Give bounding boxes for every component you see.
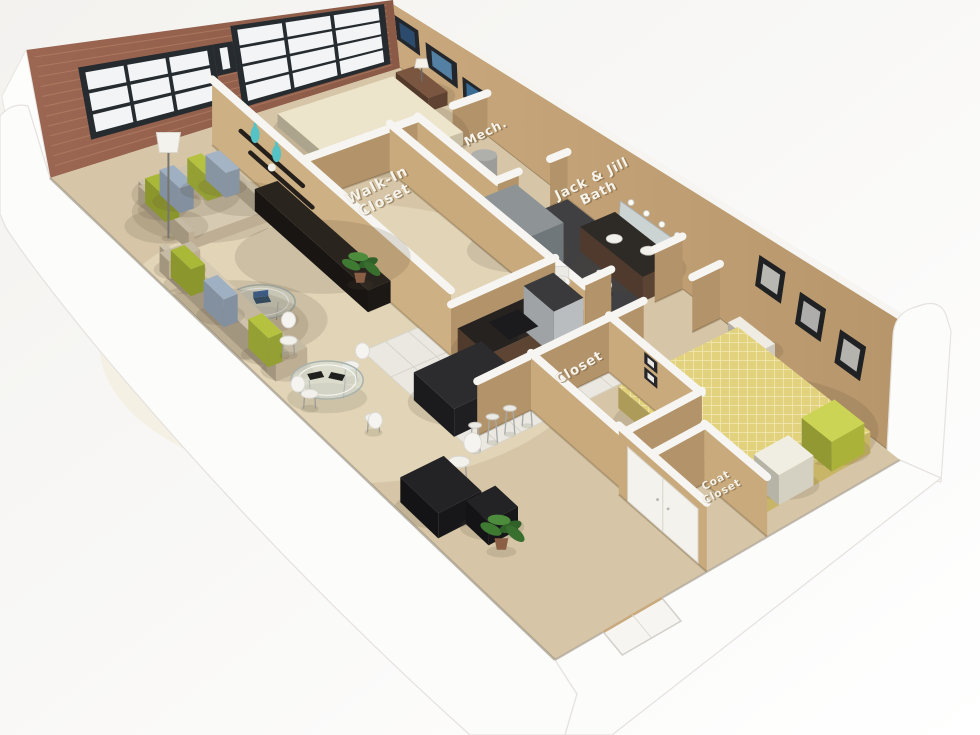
exterior-wall-right-parapet bbox=[886, 303, 951, 482]
teal-vase bbox=[251, 126, 260, 143]
floorplan-3d-render: Walk-InWalk-InClosetClosetMech.Mech.Jack… bbox=[0, 0, 980, 735]
vanity-light-bulb bbox=[659, 221, 665, 227]
teal-vase bbox=[272, 145, 281, 162]
floorplan-svg: Walk-InWalk-InClosetClosetMech.Mech.Jack… bbox=[0, 0, 980, 735]
vanity-light-bulb bbox=[628, 200, 634, 206]
decor-sphere bbox=[268, 164, 276, 172]
wall-bath-wall-south-b bbox=[655, 236, 683, 302]
scene-geometry bbox=[0, 0, 980, 735]
vanity-light-bulb bbox=[643, 210, 649, 216]
